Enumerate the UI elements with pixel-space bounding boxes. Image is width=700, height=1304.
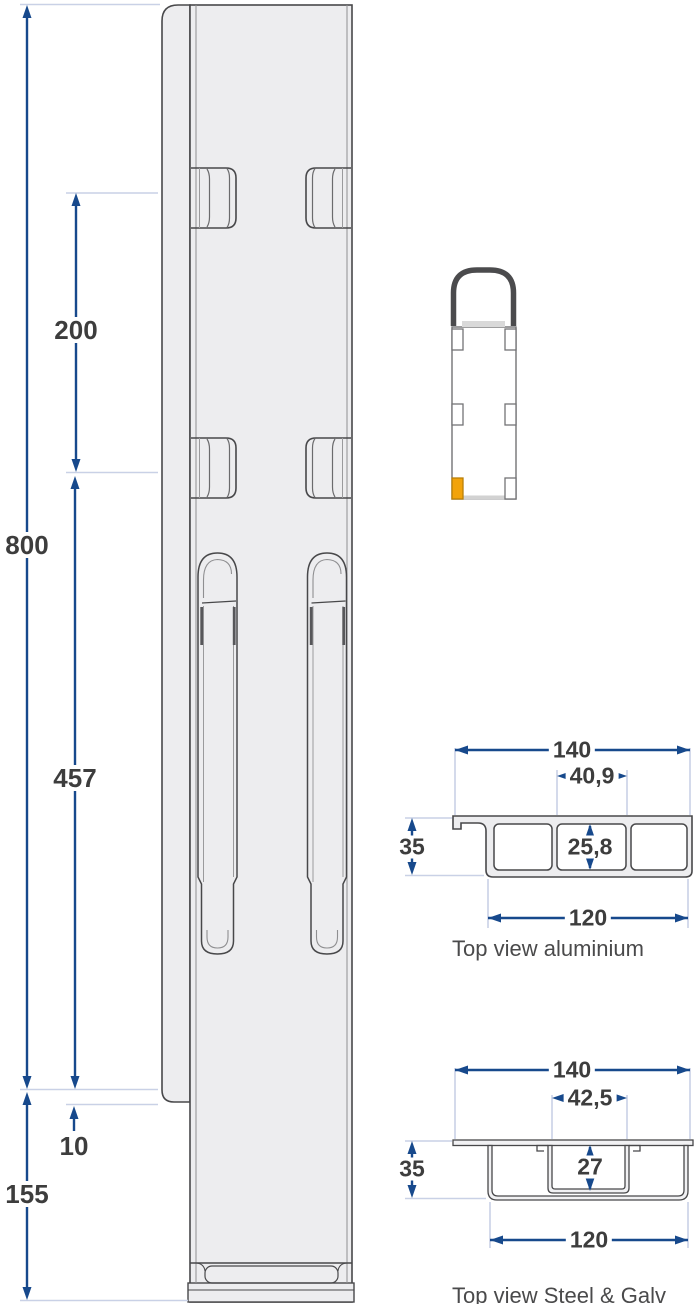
steel-dim-120-label: 120 <box>566 1229 612 1252</box>
post-rear-flange <box>162 5 190 1102</box>
steel-flange <box>453 1140 693 1146</box>
post-body <box>190 5 352 1302</box>
technical-drawing-page: 800 200 457 10 155 140 40,9 35 25,8 120 … <box>0 0 700 1304</box>
dim-10-label: 10 <box>57 1133 92 1159</box>
post-side-view <box>162 5 354 1302</box>
steel-section-drawing <box>405 1066 693 1249</box>
alu-dim-35-label: 35 <box>395 836 429 859</box>
aluminium-section-drawing <box>405 746 692 929</box>
steel-dim-140-label: 140 <box>549 1059 595 1082</box>
dim-457-label: 457 <box>50 765 99 791</box>
truck-top-view-inset <box>452 270 516 500</box>
dim-200-label: 200 <box>51 317 100 343</box>
alu-dim-40-9-label: 40,9 <box>566 765 619 788</box>
truck-highlighted-post <box>452 478 463 499</box>
post-base <box>188 1283 354 1302</box>
alu-dim-25-8-label: 25,8 <box>564 836 617 859</box>
steel-dim-27-label: 27 <box>573 1156 607 1179</box>
alu-dim-120-label: 120 <box>565 907 611 930</box>
dim-155-label: 155 <box>2 1181 51 1207</box>
truck-cab <box>454 270 514 326</box>
dim-800-label: 800 <box>2 532 51 558</box>
steel-dim-35-label: 35 <box>395 1158 429 1181</box>
steel-section-caption: Top view Steel & Galv <box>452 1284 666 1304</box>
alu-dim-140-label: 140 <box>549 739 595 762</box>
aluminium-section-caption: Top view aluminium <box>452 937 644 961</box>
steel-dim-42-5-label: 42,5 <box>564 1087 617 1110</box>
